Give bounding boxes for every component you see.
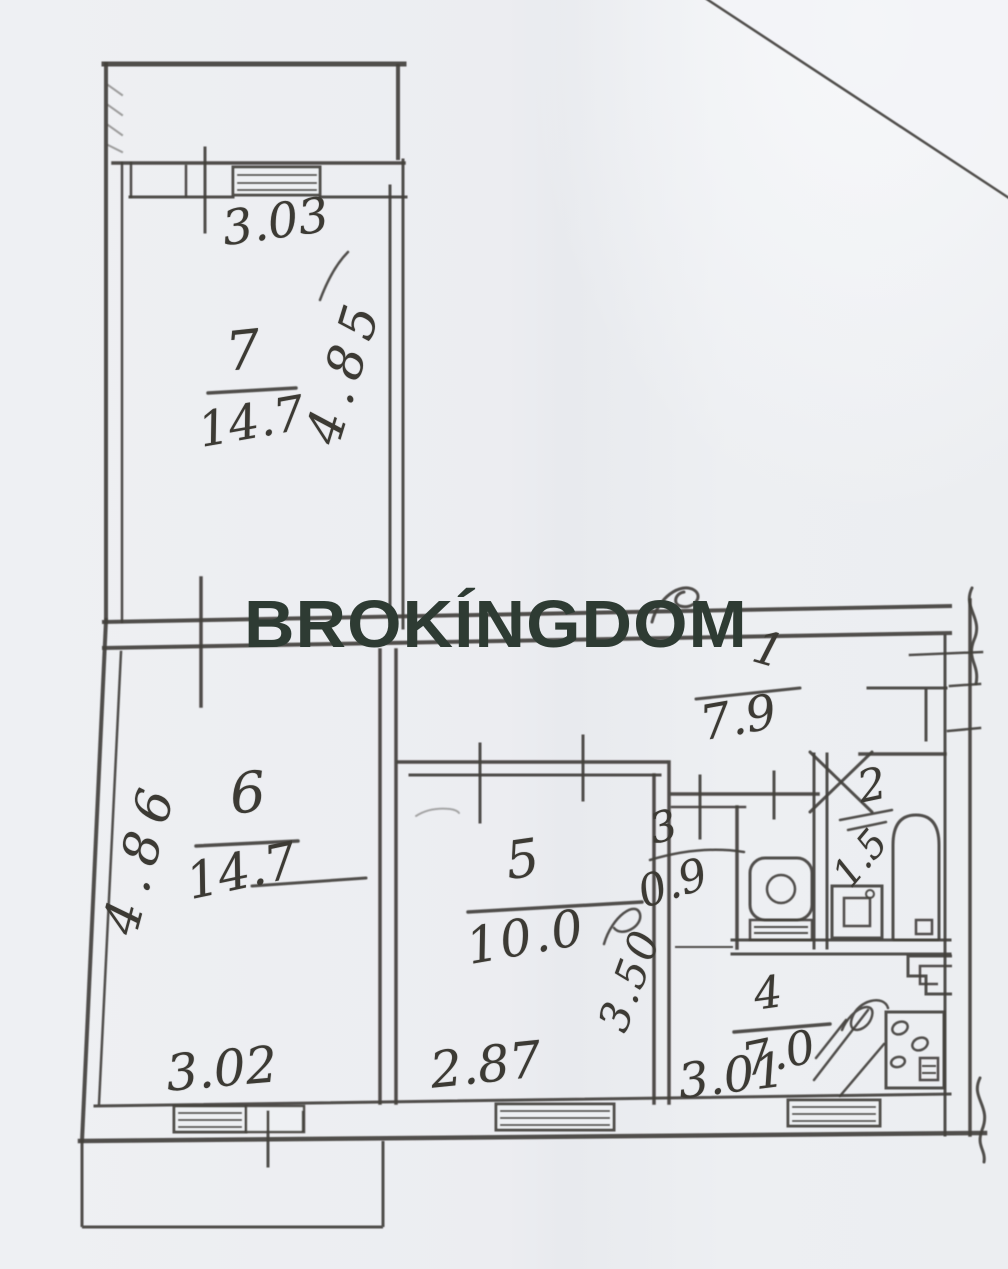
window-icon bbox=[788, 1100, 880, 1126]
room6-number: 6 bbox=[228, 765, 268, 824]
scan-artifacts bbox=[416, 0, 1008, 1162]
room7-number: 7 bbox=[223, 322, 263, 379]
dim-room6-width: 3.02 bbox=[164, 1039, 279, 1099]
dim-kitchen-width: 3.01 bbox=[675, 1046, 787, 1107]
floor-plan-scan: 3.03 7 14.7 4.85 6 14.7 4.86 3.02 5 10.0… bbox=[0, 0, 1008, 1269]
stove-icon bbox=[886, 1012, 944, 1088]
dim-room5-width: 2.87 bbox=[428, 1034, 544, 1095]
handwriting-strokes bbox=[196, 252, 892, 1096]
bathtub-icon bbox=[893, 815, 939, 940]
scan-tear-squiggle-bottom bbox=[977, 1078, 984, 1162]
hall-area: 7.9 bbox=[696, 688, 780, 749]
window-icon bbox=[496, 1104, 614, 1130]
balcony-outline bbox=[82, 1141, 383, 1227]
window-icon bbox=[174, 1106, 304, 1132]
toilet-icon bbox=[750, 858, 812, 940]
watermark-logo: BROKÍNGDOM bbox=[244, 586, 748, 663]
faint-pencil-mark bbox=[416, 809, 459, 816]
dim-room7-width: 3.03 bbox=[219, 191, 332, 253]
room5-number: 5 bbox=[503, 832, 543, 888]
kitchen-number: 4 bbox=[751, 970, 785, 1017]
